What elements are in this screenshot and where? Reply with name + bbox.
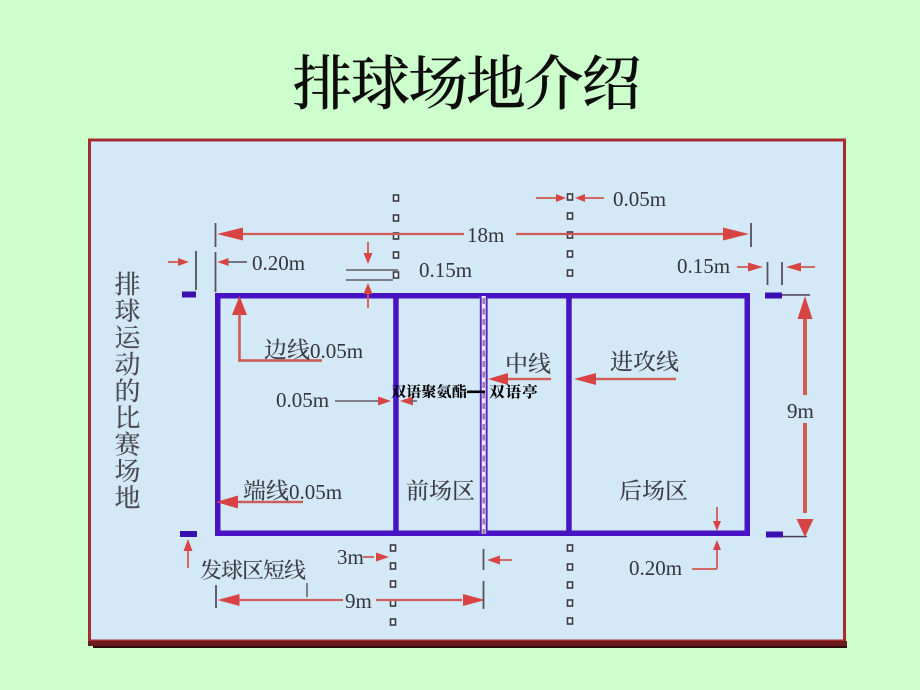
svg-text:0.05m: 0.05m [613, 187, 666, 211]
svg-text:18m: 18m [467, 223, 504, 247]
svg-text:9m: 9m [787, 399, 814, 423]
svg-text:0.05m: 0.05m [289, 480, 342, 504]
svg-text:0.15m: 0.15m [419, 258, 472, 282]
svg-text:0.20m: 0.20m [252, 251, 305, 275]
svg-text:0.15m: 0.15m [677, 254, 730, 278]
svg-text:3m: 3m [337, 545, 364, 569]
svg-text:0.20m: 0.20m [629, 556, 682, 580]
svg-text:0.05m: 0.05m [276, 388, 329, 412]
svg-text:9m: 9m [345, 589, 372, 613]
svg-text:0.05m: 0.05m [310, 339, 363, 363]
